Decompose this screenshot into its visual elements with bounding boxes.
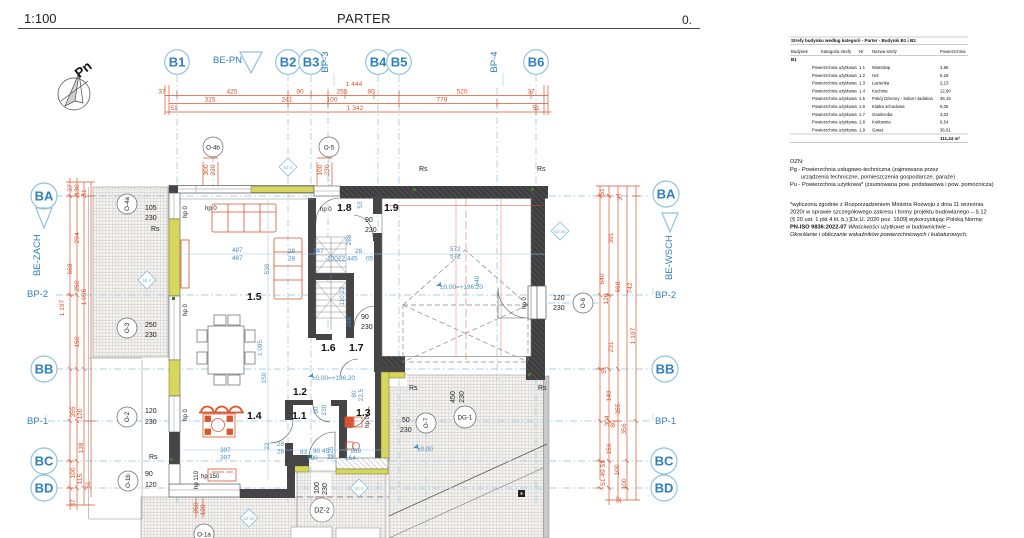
svg-text:51: 51 <box>81 189 88 197</box>
svg-text:BP-4: BP-4 <box>489 51 500 72</box>
svg-text:O-4b: O-4b <box>206 145 220 152</box>
svg-text:B5: B5 <box>391 55 408 70</box>
svg-text:Powierzchnia użytkowa: Powierzchnia użytkowa <box>812 81 857 86</box>
svg-text:2,13: 2,13 <box>940 81 949 86</box>
svg-text:51: 51 <box>532 105 540 112</box>
svg-text:hp 0: hp 0 <box>365 416 371 428</box>
svg-text:230: 230 <box>145 419 157 426</box>
svg-text:425: 425 <box>226 89 237 96</box>
svg-text:1.6: 1.6 <box>859 104 866 109</box>
svg-text:28: 28 <box>277 449 285 456</box>
svg-text:110 22: 110 22 <box>339 286 346 306</box>
svg-text:1.4: 1.4 <box>247 410 262 422</box>
svg-text:1 197: 1 197 <box>630 327 637 344</box>
svg-text:1:100: 1:100 <box>24 11 57 26</box>
svg-text:Rs: Rs <box>419 166 428 173</box>
svg-text:149: 149 <box>606 390 613 401</box>
svg-text:100: 100 <box>314 482 321 494</box>
svg-text:156: 156 <box>606 443 613 454</box>
svg-text:BE-ZACH: BE-ZACH <box>32 234 43 276</box>
svg-text:1.2: 1.2 <box>859 73 866 78</box>
svg-text:Powierzchnia użytkowa: Powierzchnia użytkowa <box>812 96 857 101</box>
svg-text:Powierzchnia użytkowa: Powierzchnia użytkowa <box>812 120 857 125</box>
svg-text:90: 90 <box>296 89 304 96</box>
svg-text:(§ 20 ust. 1 pkt 4 lit. b.) [D: (§ 20 ust. 1 pkt 4 lit. b.) [Dz.U. 2020 … <box>790 217 984 223</box>
svg-text:450: 450 <box>450 391 457 403</box>
svg-text:572: 572 <box>450 246 461 253</box>
svg-text:51 49 51: 51 49 51 <box>600 460 607 486</box>
svg-text:530: 530 <box>264 263 271 274</box>
svg-text:1.2: 1.2 <box>293 387 307 398</box>
svg-text:Określanie i obliczanie wskaźn: Określanie i obliczanie wskaźników powie… <box>790 232 968 238</box>
svg-text:120: 120 <box>77 408 84 419</box>
svg-text:80: 80 <box>367 89 375 96</box>
svg-text:1 095: 1 095 <box>81 288 88 305</box>
svg-text:52-3: 52-3 <box>354 486 364 491</box>
svg-text:90: 90 <box>145 471 153 478</box>
svg-text:B4: B4 <box>370 55 387 70</box>
svg-text:1.7: 1.7 <box>349 342 364 354</box>
svg-text:1.4: 1.4 <box>859 88 866 93</box>
svg-text:BC: BC <box>35 454 54 469</box>
svg-text:668: 668 <box>615 281 622 292</box>
svg-text:1.9: 1.9 <box>859 127 866 132</box>
svg-text:28: 28 <box>288 248 296 255</box>
svg-text:100: 100 <box>614 464 621 475</box>
svg-text:Powierzchnia użytkowa: Powierzchnia użytkowa <box>812 104 857 109</box>
svg-text:BD: BD <box>35 481 54 496</box>
svg-text:130: 130 <box>74 184 81 195</box>
svg-text:1.7: 1.7 <box>859 112 866 117</box>
svg-text:487: 487 <box>232 247 243 254</box>
svg-text:288: 288 <box>346 316 353 327</box>
svg-text:355: 355 <box>70 406 77 417</box>
svg-text:BP-2: BP-2 <box>655 290 676 301</box>
svg-text:05: 05 <box>366 256 374 263</box>
svg-text:28: 28 <box>288 256 296 263</box>
svg-text:Nr: Nr <box>859 49 864 54</box>
svg-text:BC: BC <box>655 454 674 469</box>
svg-text:36,15: 36,15 <box>940 96 951 101</box>
svg-text:230: 230 <box>210 164 217 175</box>
svg-text:Garderoba: Garderoba <box>872 112 893 117</box>
svg-text:BA: BA <box>657 187 676 202</box>
svg-text:1.1: 1.1 <box>292 410 307 422</box>
svg-text:hp 0: hp 0 <box>183 206 189 218</box>
svg-text:O-6: O-6 <box>580 297 587 308</box>
svg-text:Garaż: Garaż <box>872 127 884 132</box>
svg-text:356: 356 <box>621 423 628 434</box>
svg-text:Powierzchnia użytkowa: Powierzchnia użytkowa <box>812 88 857 93</box>
svg-text:Kuchnia: Kuchnia <box>872 88 888 93</box>
svg-text:230: 230 <box>400 427 412 434</box>
svg-text:2020r w sprawie szczegółowego: 2020r w sprawie szczegółowego zakresu i … <box>790 210 987 216</box>
svg-text:Hol: Hol <box>872 73 878 78</box>
svg-text:Powierzchnia użytkowa: Powierzchnia użytkowa <box>812 65 857 70</box>
svg-text:O-7: O-7 <box>423 417 430 428</box>
svg-text:BP-1: BP-1 <box>27 416 48 427</box>
svg-text:51: 51 <box>601 366 608 374</box>
svg-text:Strefy budynku według kategori: Strefy budynku według kategorii - Parter… <box>791 38 916 43</box>
svg-text:hp 0: hp 0 <box>183 304 189 316</box>
svg-text:22 445: 22 445 <box>338 256 358 263</box>
svg-text:51: 51 <box>85 481 92 489</box>
svg-text:325: 325 <box>204 97 215 104</box>
svg-text:Powierzchnia użytkowa: Powierzchnia użytkowa <box>812 127 857 132</box>
svg-text:90: 90 <box>361 314 369 321</box>
svg-text:Pu - Powierzchnia użytkowa* (z: Pu - Powierzchnia użytkowa* (zsumowana p… <box>790 182 994 188</box>
svg-text:640: 640 <box>474 275 481 286</box>
svg-text:250: 250 <box>145 322 157 329</box>
svg-text:778: 778 <box>436 97 447 104</box>
svg-text:150: 150 <box>74 336 81 347</box>
svg-text:120: 120 <box>145 482 157 489</box>
svg-text:BD: BD <box>655 481 674 496</box>
svg-text:5,18: 5,18 <box>940 73 949 78</box>
svg-text:28: 28 <box>355 248 363 255</box>
svg-text:BE-WSCH: BE-WSCH <box>664 235 675 280</box>
svg-text:230: 230 <box>322 483 329 495</box>
svg-text:22,5: 22,5 <box>358 388 365 401</box>
svg-text:52-3: 52-3 <box>283 165 293 170</box>
svg-text:120: 120 <box>200 504 207 515</box>
svg-text:231: 231 <box>608 341 615 352</box>
svg-text:52-34: 52-34 <box>554 229 566 234</box>
svg-text:90: 90 <box>365 217 373 224</box>
svg-text:250: 250 <box>193 502 200 513</box>
svg-text:294: 294 <box>74 232 81 243</box>
svg-text:190: 190 <box>307 455 318 462</box>
svg-text:0.: 0. <box>682 13 692 27</box>
svg-text:742: 742 <box>627 282 634 293</box>
svg-text:Pokój Dzienny - Salon+Jadalnia: Pokój Dzienny - Salon+Jadalnia <box>872 96 933 101</box>
svg-text:Kotłownia: Kotłownia <box>872 120 891 125</box>
svg-text:Nazwa strefy: Nazwa strefy <box>872 49 898 54</box>
svg-text:51: 51 <box>599 188 606 196</box>
svg-text:164: 164 <box>345 455 356 462</box>
svg-text:3,86: 3,86 <box>940 65 949 70</box>
svg-text:B6: B6 <box>528 55 545 70</box>
svg-text:12,90: 12,90 <box>940 88 951 93</box>
svg-text:52-4: 52-4 <box>142 278 152 283</box>
svg-text:230: 230 <box>145 215 157 222</box>
svg-text:90: 90 <box>313 406 320 414</box>
svg-text:BB: BB <box>656 362 675 377</box>
svg-text:3,02: 3,02 <box>940 112 949 117</box>
svg-text:225: 225 <box>328 446 335 457</box>
svg-text:1.8: 1.8 <box>337 202 352 214</box>
svg-text:Łazienka: Łazienka <box>872 81 890 86</box>
svg-text:1.8: 1.8 <box>859 120 866 125</box>
svg-text:138: 138 <box>78 442 85 453</box>
svg-text:37: 37 <box>70 499 77 507</box>
svg-text:BB: BB <box>35 362 54 377</box>
svg-text:6,54: 6,54 <box>940 120 949 125</box>
svg-text:355: 355 <box>615 403 622 414</box>
svg-text:668: 668 <box>67 263 74 274</box>
svg-text:5,05: 5,05 <box>940 104 949 109</box>
svg-text:100: 100 <box>326 97 337 104</box>
svg-text:120: 120 <box>603 293 610 304</box>
svg-text:37: 37 <box>67 184 74 192</box>
svg-text:230: 230 <box>361 324 373 331</box>
svg-text:1.3: 1.3 <box>859 81 866 86</box>
svg-text:B3: B3 <box>303 55 320 70</box>
svg-text:115: 115 <box>77 473 84 484</box>
svg-text:150: 150 <box>261 372 268 383</box>
svg-text:O-4a: O-4a <box>124 197 131 211</box>
svg-text:1.5: 1.5 <box>859 96 866 101</box>
svg-text:1 095: 1 095 <box>257 340 264 356</box>
svg-text:230: 230 <box>553 305 565 312</box>
svg-text:7 968: 7 968 <box>345 448 361 455</box>
svg-text:BE-PN: BE-PN <box>213 55 242 66</box>
svg-text:DZ-2: DZ-2 <box>314 508 330 515</box>
svg-text:hp 0: hp 0 <box>522 297 528 309</box>
svg-text:hp 0: hp 0 <box>183 409 189 421</box>
svg-text:1 197: 1 197 <box>59 299 66 316</box>
svg-text:Budynek: Budynek <box>791 49 809 54</box>
svg-text:230: 230 <box>459 391 466 403</box>
svg-text:Rs: Rs <box>149 454 158 461</box>
svg-text:Powierzchnia: Powierzchnia <box>940 49 966 54</box>
svg-text:111,44 m²: 111,44 m² <box>940 136 961 141</box>
svg-text:Klatka schodowa: Klatka schodowa <box>872 104 905 109</box>
svg-text:80: 80 <box>610 420 617 428</box>
svg-text:O-3: O-3 <box>124 322 131 333</box>
svg-text:urządzenia techniczne, pomiesz: urządzenia techniczne, pomieszczenia gos… <box>801 175 955 181</box>
svg-text:300: 300 <box>203 164 210 175</box>
svg-text:*wyliczona zgodnie z Rozporząd: *wyliczona zgodnie z Rozporządzeniem Min… <box>790 202 984 208</box>
svg-text:1.6: 1.6 <box>321 342 336 354</box>
svg-text:1 444: 1 444 <box>346 81 363 88</box>
svg-text:±0,00=+196,20: ±0,00=+196,20 <box>312 375 355 382</box>
svg-text:hp 0: hp 0 <box>205 206 217 212</box>
svg-text:397: 397 <box>220 455 231 462</box>
svg-text:BA: BA <box>35 189 54 204</box>
svg-text:1.1: 1.1 <box>859 65 866 70</box>
svg-text:Powierzchnia użytkowa: Powierzchnia użytkowa <box>812 112 857 117</box>
svg-text:36,61: 36,61 <box>940 127 951 132</box>
svg-text:347: 347 <box>313 248 324 255</box>
svg-text:O-1b: O-1b <box>125 474 132 488</box>
svg-text:100: 100 <box>317 164 324 175</box>
svg-text:Powierzchnia użytkowa: Powierzchnia użytkowa <box>812 73 857 78</box>
svg-text:hp 0: hp 0 <box>320 207 332 213</box>
svg-text:100: 100 <box>70 467 77 478</box>
svg-text:B1: B1 <box>169 55 186 70</box>
svg-text:Rs: Rs <box>151 226 160 233</box>
svg-text:1.5: 1.5 <box>247 291 262 303</box>
svg-text:572: 572 <box>450 254 461 261</box>
svg-text:288: 288 <box>346 234 353 245</box>
svg-text:OZN:: OZN: <box>790 159 804 165</box>
svg-text:hp 110: hp 110 <box>194 470 200 489</box>
svg-text:397: 397 <box>220 447 231 454</box>
svg-text:Pg - Powierzchnia usługowo-tec: Pg - Powierzchnia usługowo-techniczna (z… <box>790 167 938 173</box>
svg-text:241: 241 <box>281 97 292 104</box>
svg-text:PN-ISO 9836:2022-07 Właściwośc: PN-ISO 9836:2022-07 Właściwości użytkowe… <box>790 225 951 231</box>
svg-text:B2: B2 <box>280 55 297 70</box>
svg-text:50: 50 <box>402 417 410 424</box>
svg-text:O-5: O-5 <box>324 145 335 152</box>
svg-text:Rs: Rs <box>538 385 547 392</box>
svg-text:640: 640 <box>599 273 606 284</box>
svg-text:Rs: Rs <box>409 385 418 392</box>
svg-text:DG-1: DG-1 <box>458 415 473 422</box>
svg-text:Kategoria strefy: Kategoria strefy <box>821 49 852 54</box>
svg-text:120: 120 <box>553 295 565 302</box>
svg-text:BP-3: BP-3 <box>320 51 331 72</box>
svg-text:80: 80 <box>351 390 358 398</box>
svg-text:PARTER: PARTER <box>337 11 391 26</box>
svg-text:250: 250 <box>74 280 81 291</box>
svg-text:520: 520 <box>456 89 467 96</box>
svg-text:100: 100 <box>621 478 628 489</box>
svg-text:hp 150: hp 150 <box>201 474 220 480</box>
svg-text:230: 230 <box>324 164 331 175</box>
svg-text:BP-2: BP-2 <box>27 289 48 300</box>
svg-text:O-1a: O-1a <box>197 532 211 538</box>
svg-text:120: 120 <box>145 408 157 415</box>
svg-text:51: 51 <box>170 105 178 112</box>
svg-text:28: 28 <box>277 441 285 448</box>
svg-text:230: 230 <box>145 332 157 339</box>
svg-text:230: 230 <box>321 404 328 415</box>
svg-text:105: 105 <box>145 205 157 212</box>
svg-text:BP-1: BP-1 <box>655 416 676 427</box>
svg-text:±0.00: ±0.00 <box>417 446 433 453</box>
svg-text:255: 255 <box>336 89 347 96</box>
svg-text:37: 37 <box>617 193 624 201</box>
svg-text:1.9: 1.9 <box>384 202 399 214</box>
svg-text:B1: B1 <box>791 57 797 62</box>
svg-text:53: 53 <box>357 201 364 209</box>
svg-text:52-34: 52-34 <box>243 516 255 521</box>
svg-text:37: 37 <box>158 89 166 96</box>
svg-text:487: 487 <box>232 255 243 262</box>
svg-text:22: 22 <box>264 442 271 450</box>
svg-text:1 342: 1 342 <box>347 105 364 112</box>
svg-text:Wiatrołap: Wiatrołap <box>872 65 891 70</box>
svg-text:Rs: Rs <box>537 166 546 173</box>
svg-text:37: 37 <box>616 496 623 504</box>
svg-text:230: 230 <box>365 227 377 234</box>
svg-text:O-2: O-2 <box>124 411 131 422</box>
svg-text:391: 391 <box>608 232 615 243</box>
svg-text:37: 37 <box>527 89 535 96</box>
